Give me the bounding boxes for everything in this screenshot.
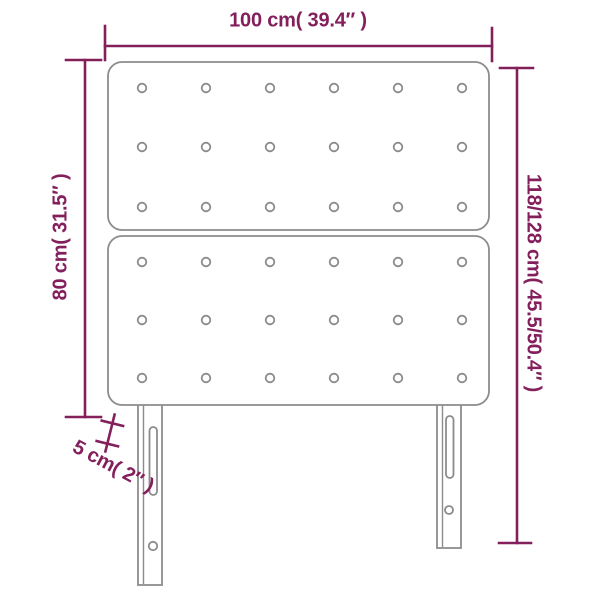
- tufting-button: [202, 143, 211, 152]
- headboard-lower-panel: [108, 236, 489, 405]
- right-leg: [437, 404, 461, 548]
- tufting-button: [138, 258, 147, 267]
- tufting-button: [330, 143, 339, 152]
- panel-height-dimension-label: 80 cm( 31.5″ ): [50, 174, 73, 301]
- tufting-button: [202, 258, 211, 267]
- tufting-button: [138, 84, 147, 93]
- tufting-button: [266, 143, 275, 152]
- tufting-button: [394, 143, 403, 152]
- tufting-button: [458, 374, 467, 383]
- tufting-button: [138, 374, 147, 383]
- tufting-button: [266, 316, 275, 325]
- tufting-button: [330, 84, 339, 93]
- tufting-button: [202, 316, 211, 325]
- tufting-button: [202, 203, 211, 212]
- total-height-dimension-label: 118/128 cm( 45.5/50.4″ ): [522, 174, 545, 392]
- tufting-button: [394, 258, 403, 267]
- tufting-button: [266, 258, 275, 267]
- tufting-button: [394, 316, 403, 325]
- tufting-button: [394, 203, 403, 212]
- tufting-button: [458, 258, 467, 267]
- tufting-button: [458, 316, 467, 325]
- tufting-button: [330, 316, 339, 325]
- tufting-button: [458, 203, 467, 212]
- tufting-button: [394, 374, 403, 383]
- width-dimension-label: 100 cm( 39.4″ ): [229, 10, 367, 33]
- headboard: [108, 62, 489, 585]
- headboard-diagram: [0, 0, 600, 600]
- right-leg-screw-hole: [445, 506, 453, 514]
- tufting-button: [266, 374, 275, 383]
- tufting-button: [330, 374, 339, 383]
- tufting-button: [458, 84, 467, 93]
- tufting-button: [138, 203, 147, 212]
- tufting-button: [138, 316, 147, 325]
- tufting-button: [394, 84, 403, 93]
- tufting-button: [458, 143, 467, 152]
- tufting-button: [202, 84, 211, 93]
- tufting-button: [202, 374, 211, 383]
- tufting-button: [266, 84, 275, 93]
- tufting-button: [138, 143, 147, 152]
- diagram-canvas: 100 cm( 39.4″ ) 80 cm( 31.5″ ) 118/128 c…: [0, 0, 600, 600]
- tufting-button: [266, 203, 275, 212]
- left-leg-screw-hole: [149, 542, 157, 550]
- headboard-upper-panel: [108, 62, 489, 230]
- tufting-button: [330, 258, 339, 267]
- right-leg-slot: [446, 416, 454, 478]
- tufting-button: [330, 203, 339, 212]
